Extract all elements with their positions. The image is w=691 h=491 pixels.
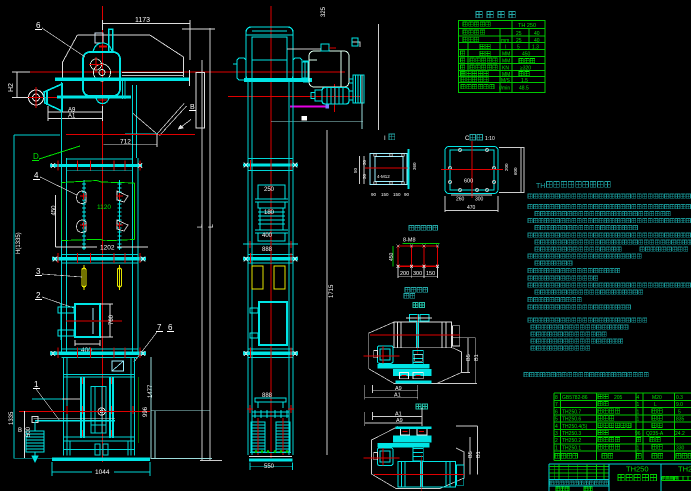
svg-text:A1: A1 bbox=[395, 412, 402, 418]
svg-text:MM: MM bbox=[502, 59, 510, 65]
svg-text:300: 300 bbox=[413, 271, 422, 277]
svg-text:96: 96 bbox=[635, 431, 641, 437]
svg-text:90: 90 bbox=[371, 192, 377, 197]
svg-text:1202: 1202 bbox=[100, 245, 115, 252]
svg-text:150: 150 bbox=[381, 192, 389, 197]
svg-text:mm: mm bbox=[501, 38, 509, 44]
svg-text:25: 25 bbox=[516, 31, 522, 37]
svg-text:M20: M20 bbox=[652, 395, 662, 401]
svg-text:L: L bbox=[197, 224, 204, 228]
svg-text:1: 1 bbox=[637, 409, 640, 415]
svg-text:180: 180 bbox=[264, 210, 275, 216]
svg-text:5: 5 bbox=[517, 45, 520, 51]
svg-text:H(1335): H(1335) bbox=[16, 232, 22, 254]
svg-text:A9: A9 bbox=[395, 386, 402, 392]
svg-text:400: 400 bbox=[262, 233, 273, 239]
svg-text:550: 550 bbox=[264, 464, 275, 470]
svg-text:150: 150 bbox=[426, 271, 435, 277]
svg-text:TH250.6: TH250.6 bbox=[562, 417, 581, 423]
svg-text:200: 200 bbox=[400, 271, 409, 277]
svg-text:1: 1 bbox=[34, 380, 39, 389]
svg-text:470: 470 bbox=[467, 205, 476, 211]
svg-text:30: 30 bbox=[362, 159, 367, 165]
svg-text:A1: A1 bbox=[68, 114, 76, 120]
svg-text:TH: TH bbox=[536, 183, 545, 190]
svg-text:TH250.1: TH250.1 bbox=[562, 445, 581, 451]
svg-text:1173: 1173 bbox=[135, 17, 150, 24]
svg-text:M/S: M/S bbox=[501, 78, 511, 84]
svg-text:40: 40 bbox=[534, 38, 540, 44]
svg-text:450: 450 bbox=[389, 252, 395, 261]
svg-text:KN: KN bbox=[502, 65, 509, 71]
svg-text:TH250.4(5): TH250.4(5) bbox=[562, 424, 588, 430]
svg-text:l: l bbox=[505, 45, 506, 51]
svg-text:2: 2 bbox=[36, 291, 41, 300]
svg-text:2: 2 bbox=[555, 438, 558, 444]
svg-text:300: 300 bbox=[475, 197, 484, 203]
svg-text:9.0: 9.0 bbox=[676, 402, 683, 408]
svg-text:TH25: TH25 bbox=[678, 465, 691, 474]
svg-text:8: 8 bbox=[555, 395, 558, 401]
svg-text:B5: B5 bbox=[468, 451, 474, 458]
svg-text:7: 7 bbox=[157, 323, 162, 332]
svg-text:1: 1 bbox=[637, 445, 640, 451]
svg-text:30: 30 bbox=[362, 173, 367, 179]
svg-text:L: L bbox=[654, 402, 657, 408]
svg-text:TH 250: TH 250 bbox=[518, 23, 536, 29]
svg-text:1: 1 bbox=[637, 402, 640, 408]
svg-text:1: 1 bbox=[555, 445, 558, 451]
svg-text:≥320: ≥320 bbox=[520, 65, 531, 71]
svg-text:1.5: 1.5 bbox=[521, 78, 528, 84]
svg-text:150: 150 bbox=[393, 192, 401, 197]
svg-text:GB5782-86: GB5782-86 bbox=[562, 395, 588, 401]
svg-text:325: 325 bbox=[321, 6, 327, 17]
svg-text:200: 200 bbox=[504, 163, 509, 171]
svg-text:0.3: 0.3 bbox=[676, 395, 683, 401]
svg-text:7: 7 bbox=[555, 402, 558, 408]
svg-text:50: 50 bbox=[353, 167, 358, 173]
svg-text:r/min: r/min bbox=[499, 86, 510, 92]
svg-text:MM: MM bbox=[502, 52, 510, 58]
svg-text:4-M12: 4-M12 bbox=[377, 174, 390, 179]
svg-text:24.2: 24.2 bbox=[675, 431, 685, 437]
svg-text:B1: B1 bbox=[474, 354, 480, 361]
svg-text:TH250: TH250 bbox=[626, 465, 649, 474]
svg-text:888: 888 bbox=[262, 393, 273, 399]
svg-text:TH250.3: TH250.3 bbox=[562, 431, 581, 437]
svg-text:D: D bbox=[33, 152, 39, 161]
svg-text:MM: MM bbox=[502, 72, 510, 78]
svg-text:B5: B5 bbox=[466, 354, 472, 361]
svg-text:3: 3 bbox=[555, 431, 558, 437]
svg-text:H2: H2 bbox=[8, 83, 15, 92]
svg-text:450: 450 bbox=[52, 205, 58, 216]
svg-text:4: 4 bbox=[555, 424, 558, 430]
svg-text:205: 205 bbox=[614, 395, 623, 401]
svg-text:712: 712 bbox=[120, 139, 131, 146]
svg-text:B1: B1 bbox=[476, 451, 482, 458]
svg-text:1: 1 bbox=[637, 417, 640, 423]
svg-text:500: 500 bbox=[26, 426, 32, 437]
svg-text:3: 3 bbox=[36, 267, 41, 276]
svg-text:250: 250 bbox=[264, 187, 275, 193]
svg-text:888: 888 bbox=[262, 247, 273, 253]
svg-text:8-M8: 8-M8 bbox=[403, 238, 416, 244]
svg-text:600: 600 bbox=[464, 179, 473, 185]
svg-text:1335: 1335 bbox=[9, 411, 15, 425]
svg-text:A9: A9 bbox=[396, 418, 403, 424]
svg-text:5: 5 bbox=[678, 409, 681, 415]
svg-text:A1: A1 bbox=[394, 392, 401, 398]
svg-text:450: 450 bbox=[522, 52, 531, 58]
svg-text:90: 90 bbox=[404, 192, 410, 197]
svg-text:760: 760 bbox=[109, 314, 115, 325]
svg-text:360: 360 bbox=[412, 162, 417, 170]
svg-text:5: 5 bbox=[555, 417, 558, 423]
svg-text:1120: 1120 bbox=[97, 204, 111, 211]
svg-text:TH250.2: TH250.2 bbox=[562, 438, 581, 444]
svg-text:330: 330 bbox=[676, 445, 685, 451]
svg-text:4: 4 bbox=[34, 171, 39, 180]
svg-text:B: B bbox=[18, 428, 22, 434]
svg-text:L: L bbox=[208, 224, 215, 228]
svg-text:B: B bbox=[190, 104, 195, 111]
svg-text:1715: 1715 bbox=[329, 284, 335, 298]
svg-text:6: 6 bbox=[168, 323, 173, 332]
svg-text:600: 600 bbox=[513, 167, 518, 175]
svg-text:C: C bbox=[465, 136, 470, 142]
svg-text:260: 260 bbox=[456, 197, 465, 203]
svg-text:1.3: 1.3 bbox=[532, 45, 539, 51]
svg-text:25: 25 bbox=[516, 38, 522, 44]
svg-text:1:10: 1:10 bbox=[485, 136, 495, 142]
svg-text:6: 6 bbox=[555, 409, 558, 415]
svg-text:6: 6 bbox=[36, 21, 41, 30]
svg-text:835: 835 bbox=[676, 417, 685, 423]
svg-text:1044: 1044 bbox=[95, 469, 110, 476]
svg-text:40: 40 bbox=[534, 31, 540, 37]
svg-text:996: 996 bbox=[143, 406, 149, 417]
svg-text:Q235-A: Q235-A bbox=[646, 431, 664, 437]
svg-text:TH250.7: TH250.7 bbox=[562, 409, 581, 415]
svg-text:48.5: 48.5 bbox=[519, 86, 529, 92]
svg-text:4: 4 bbox=[637, 395, 640, 401]
